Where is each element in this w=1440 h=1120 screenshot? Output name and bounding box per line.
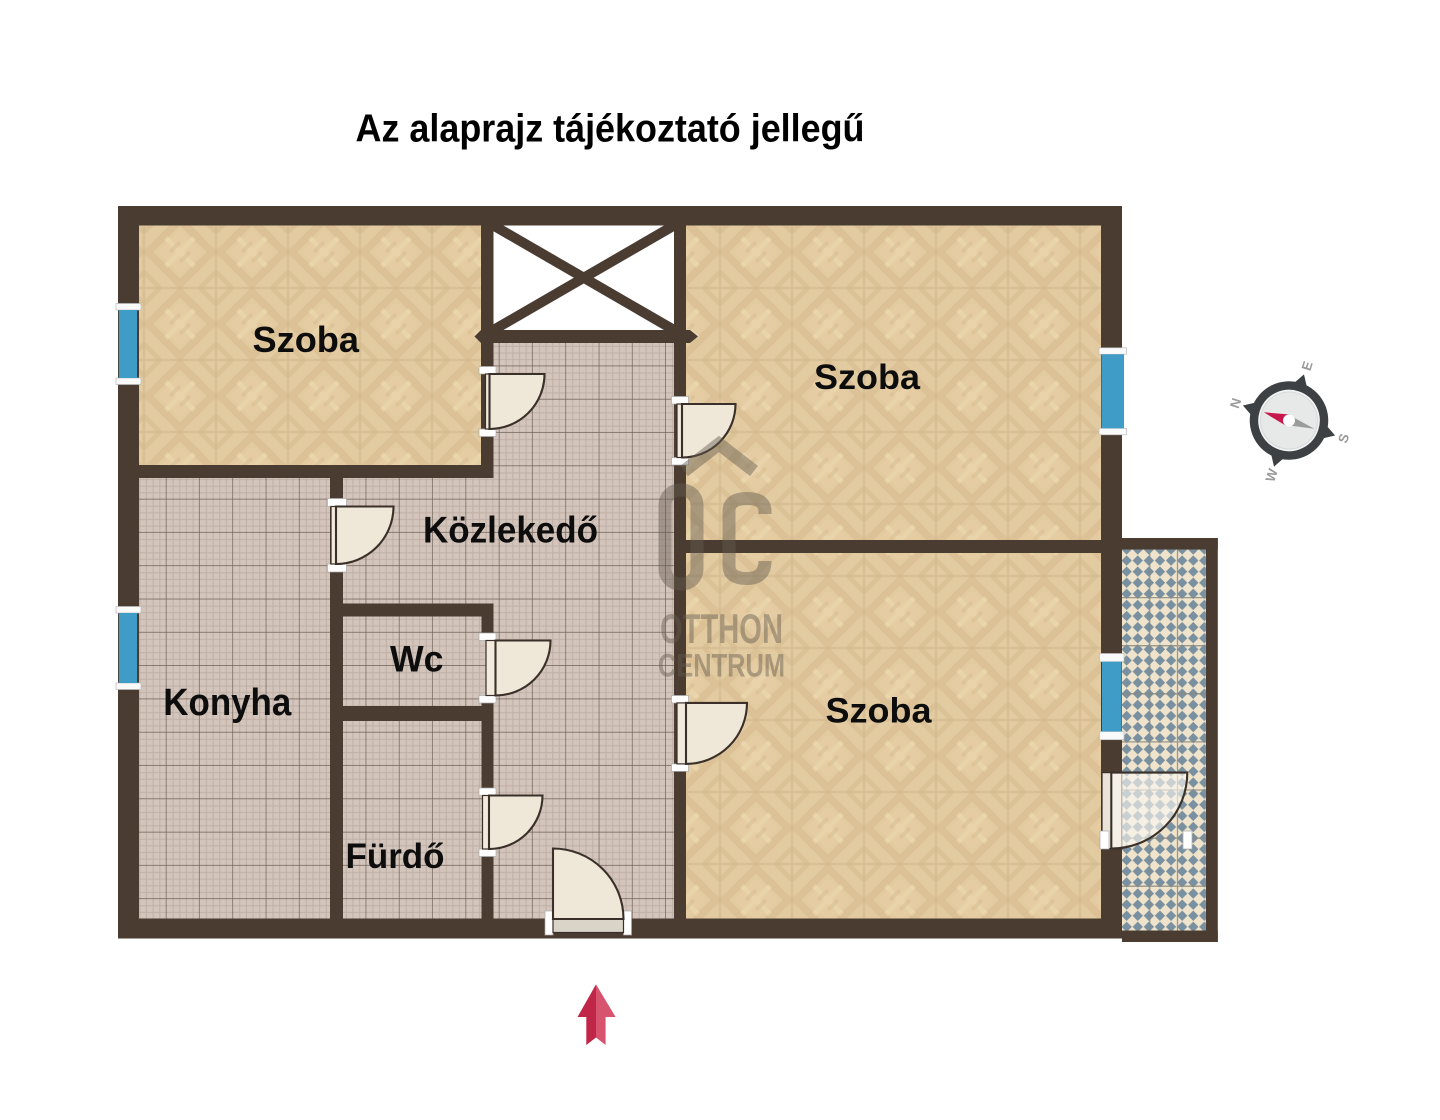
svg-text:OTTHON: OTTHON (660, 605, 783, 652)
svg-text:Szoba: Szoba (826, 691, 932, 731)
svg-text:N: N (1227, 396, 1244, 410)
svg-text:Konyha: Konyha (163, 682, 292, 724)
svg-text:Fürdő: Fürdő (346, 836, 445, 876)
svg-text:Az alaprajz tájékoztató jelleg: Az alaprajz tájékoztató jellegű (356, 108, 865, 151)
svg-text:Wc: Wc (390, 638, 444, 680)
svg-text:CENTRUM: CENTRUM (658, 648, 785, 684)
svg-text:E: E (1299, 359, 1316, 372)
svg-text:Szoba: Szoba (253, 319, 360, 360)
svg-text:Szoba: Szoba (814, 357, 920, 397)
svg-text:Közlekedő: Közlekedő (423, 510, 598, 551)
svg-text:W: W (1263, 467, 1281, 484)
svg-text:S: S (1335, 432, 1352, 445)
